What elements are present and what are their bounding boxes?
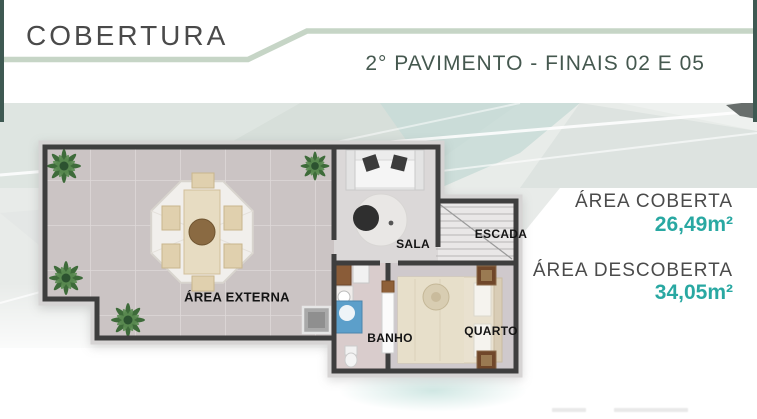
page-subtitle: 2° PAVIMENTO - FINAIS 02 E 05 (365, 52, 705, 76)
ac-unit (303, 307, 330, 333)
areas-info-block: ÁREA COBERTA 26,49m² ÁREA DESCOBERTA 34,… (533, 192, 733, 329)
plant-icon (47, 149, 81, 183)
plant-icon (49, 261, 83, 295)
plant-icon (111, 303, 145, 337)
nightstand (477, 266, 496, 285)
room-label-banho: BANHO (367, 331, 413, 345)
floor-plan-svg (30, 135, 530, 380)
room-label-sala: SALA (396, 237, 430, 251)
bed-icon (398, 277, 502, 363)
room-label-quarto: QUARTO (464, 324, 518, 338)
area-descoberta-value: 34,05m² (533, 281, 733, 305)
plant-icon (301, 152, 330, 181)
cropped-watermark (552, 406, 702, 416)
area-coberta-value: 26,49m² (533, 213, 733, 237)
room-label-area-externa: ÁREA EXTERNA (184, 290, 290, 305)
left-edge-accent-bar (0, 0, 4, 122)
room-label-escada: ESCADA (475, 227, 527, 241)
area-descoberta-label: ÁREA DESCOBERTA (533, 261, 733, 282)
area-coberta-label: ÁREA COBERTA (533, 192, 733, 213)
nightstand (477, 351, 496, 370)
sofa-icon (346, 150, 424, 190)
page-title: COBERTURA (26, 20, 228, 52)
right-edge-accent-bar (753, 0, 757, 122)
